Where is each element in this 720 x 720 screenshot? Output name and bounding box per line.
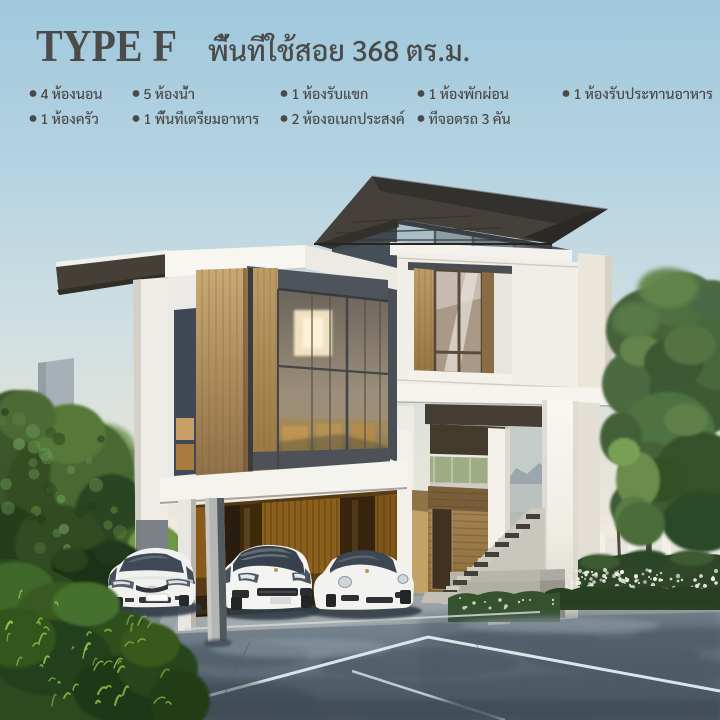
svg-text:TYPE F: TYPE F (36, 20, 177, 71)
